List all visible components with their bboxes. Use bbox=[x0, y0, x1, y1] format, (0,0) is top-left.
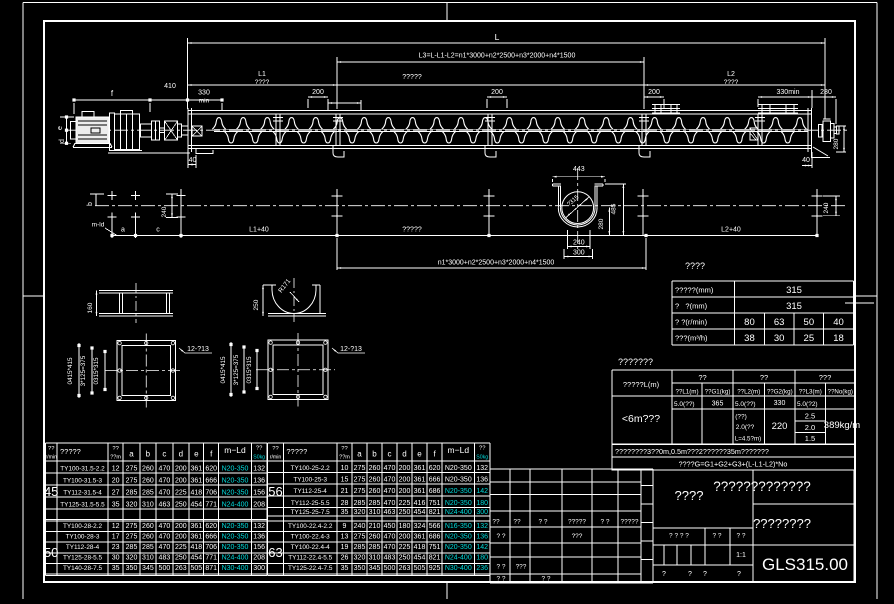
svg-text:N30-400: N30-400 bbox=[445, 565, 472, 572]
svg-text:320: 320 bbox=[354, 509, 366, 516]
svg-text:1.5: 1.5 bbox=[805, 434, 815, 443]
svg-text:56: 56 bbox=[268, 484, 282, 499]
svg-text:? ?(r/min): ? ?(r/min) bbox=[675, 318, 708, 327]
svg-text:S0kg: S0kg bbox=[253, 455, 265, 461]
svg-text:320: 320 bbox=[354, 555, 366, 562]
svg-text:40: 40 bbox=[802, 157, 810, 164]
svg-text:e: e bbox=[57, 126, 64, 130]
svg-text:????: ???? bbox=[255, 79, 270, 86]
svg-text:250: 250 bbox=[175, 502, 187, 509]
svg-text:310: 310 bbox=[142, 555, 154, 562]
svg-text:??L1(m): ??L1(m) bbox=[675, 389, 698, 396]
svg-text:180: 180 bbox=[476, 500, 488, 507]
svg-text:260: 260 bbox=[142, 523, 154, 530]
svg-text:min: min bbox=[199, 98, 210, 105]
svg-text:L=4.5?m): L=4.5?m) bbox=[735, 436, 761, 443]
svg-text:25: 25 bbox=[804, 333, 815, 344]
svg-text:???: ??? bbox=[819, 373, 832, 382]
svg-text:?????: ????? bbox=[620, 519, 638, 526]
svg-text:200: 200 bbox=[175, 533, 187, 540]
svg-text:315: 315 bbox=[786, 285, 802, 296]
svg-text:275: 275 bbox=[354, 477, 366, 484]
svg-text:2.5: 2.5 bbox=[805, 412, 815, 421]
svg-text:200: 200 bbox=[399, 533, 411, 540]
svg-text:180: 180 bbox=[476, 555, 488, 562]
svg-text:?????: ????? bbox=[568, 519, 586, 526]
svg-text:505: 505 bbox=[414, 565, 426, 572]
svg-text:? ?: ? ? bbox=[496, 533, 505, 540]
svg-text:2.0: 2.0 bbox=[805, 423, 815, 432]
svg-text:b: b bbox=[372, 450, 377, 459]
svg-text:285: 285 bbox=[142, 490, 154, 497]
svg-text:361: 361 bbox=[190, 466, 202, 473]
svg-text:200: 200 bbox=[175, 466, 187, 473]
svg-text:330: 330 bbox=[774, 400, 786, 407]
svg-text:30: 30 bbox=[774, 333, 785, 344]
svg-text:200: 200 bbox=[399, 477, 411, 484]
svg-text:389kg/m: 389kg/m bbox=[824, 420, 861, 431]
svg-text:??: ?? bbox=[341, 446, 348, 452]
svg-text:r/min: r/min bbox=[45, 455, 57, 461]
svg-text:620: 620 bbox=[205, 523, 217, 530]
svg-text:TY125-28-5.5: TY125-28-5.5 bbox=[63, 555, 103, 562]
svg-text:361: 361 bbox=[190, 478, 202, 485]
svg-text:505: 505 bbox=[190, 565, 202, 572]
svg-text:330min: 330min bbox=[777, 89, 800, 96]
svg-text:n1*3000+n2*2500+n3*2000+n4*150: n1*3000+n2*2500+n3*2000+n4*1500 bbox=[438, 260, 555, 267]
svg-text:b: b bbox=[146, 450, 151, 459]
svg-text:470: 470 bbox=[384, 477, 396, 484]
svg-text:30: 30 bbox=[112, 555, 120, 562]
svg-text:????: ???? bbox=[675, 488, 704, 503]
svg-text:TY100-28-2.2: TY100-28-2.2 bbox=[63, 523, 103, 530]
svg-text:200: 200 bbox=[399, 465, 411, 472]
svg-text:L1+40: L1+40 bbox=[249, 227, 269, 234]
svg-text:500: 500 bbox=[384, 565, 396, 572]
svg-text:??: ?? bbox=[256, 446, 263, 452]
svg-text:c: c bbox=[156, 227, 160, 234]
svg-text:324: 324 bbox=[414, 523, 426, 530]
svg-text:N20-350: N20-350 bbox=[445, 533, 472, 540]
svg-text:????: ???? bbox=[724, 79, 739, 86]
svg-text:751: 751 bbox=[429, 500, 441, 507]
svg-text:N20-350: N20-350 bbox=[222, 466, 249, 473]
svg-text:18: 18 bbox=[833, 333, 844, 344]
svg-text:L3=L-L1-L2=n1*3000+n2*2500+n3*: L3=L-L1-L2=n1*3000+n2*2500+n3*2000+n4*15… bbox=[419, 53, 576, 60]
svg-text:5.0(??): 5.0(??) bbox=[674, 401, 695, 408]
svg-text:686: 686 bbox=[429, 488, 441, 495]
svg-text:200: 200 bbox=[399, 488, 411, 495]
svg-text:285: 285 bbox=[354, 500, 366, 507]
svg-text:TY100-22.4-3: TY100-22.4-3 bbox=[291, 533, 331, 540]
svg-text:463: 463 bbox=[159, 502, 171, 509]
svg-text:470: 470 bbox=[384, 533, 396, 540]
svg-text:m−Ld: m−Ld bbox=[448, 445, 470, 455]
svg-text:TY125-31.5-5.5: TY125-31.5-5.5 bbox=[60, 502, 105, 509]
svg-text:? ?: ? ? bbox=[736, 533, 745, 540]
svg-text:275: 275 bbox=[126, 478, 138, 485]
svg-text:5.0(?2): 5.0(?2) bbox=[797, 401, 818, 408]
svg-text:N24-400: N24-400 bbox=[445, 509, 472, 516]
svg-text:????: ???? bbox=[685, 261, 705, 271]
svg-text:?: ? bbox=[662, 571, 666, 578]
svg-text:3*125=375: 3*125=375 bbox=[233, 354, 240, 385]
svg-text:N20-350: N20-350 bbox=[222, 478, 249, 485]
svg-text:??L2(m): ??L2(m) bbox=[737, 389, 760, 396]
svg-text:??: ?? bbox=[112, 446, 119, 452]
svg-text:? ? ? ?: ? ? ? ? bbox=[669, 533, 689, 540]
svg-text:686: 686 bbox=[429, 533, 441, 540]
svg-text:?: ? bbox=[737, 571, 741, 578]
svg-text:666: 666 bbox=[429, 477, 441, 484]
svg-text:260: 260 bbox=[369, 533, 381, 540]
svg-text:10: 10 bbox=[341, 465, 349, 472]
svg-text:275: 275 bbox=[354, 533, 366, 540]
svg-text:<6m???: <6m??? bbox=[622, 413, 660, 425]
svg-text:20: 20 bbox=[112, 478, 120, 485]
svg-text:? ?: ? ? bbox=[600, 519, 609, 526]
svg-text:a: a bbox=[121, 227, 125, 234]
svg-text:771: 771 bbox=[205, 555, 217, 562]
svg-text:260: 260 bbox=[142, 533, 154, 540]
svg-text:706: 706 bbox=[205, 544, 217, 551]
svg-text:?????(mm): ?????(mm) bbox=[675, 286, 714, 295]
svg-text:142: 142 bbox=[476, 544, 488, 551]
svg-text:TY140-28-7.5: TY140-28-7.5 bbox=[63, 565, 103, 572]
svg-text:240: 240 bbox=[573, 240, 585, 247]
svg-text:361: 361 bbox=[190, 523, 202, 530]
svg-text:260: 260 bbox=[369, 477, 381, 484]
svg-text:320: 320 bbox=[126, 555, 138, 562]
svg-text:N20-350: N20-350 bbox=[222, 533, 249, 540]
svg-text:? ?: ? ? bbox=[496, 564, 505, 571]
svg-text:751: 751 bbox=[429, 544, 441, 551]
svg-text:? ?: ? ? bbox=[541, 576, 550, 583]
svg-text:9: 9 bbox=[343, 523, 347, 530]
svg-text:63: 63 bbox=[774, 317, 785, 328]
svg-text:361: 361 bbox=[414, 465, 426, 472]
svg-text:418: 418 bbox=[190, 490, 202, 497]
svg-text:50: 50 bbox=[804, 317, 815, 328]
svg-text:706: 706 bbox=[205, 490, 217, 497]
svg-text:12-?13: 12-?13 bbox=[187, 346, 209, 353]
svg-text:310: 310 bbox=[142, 502, 154, 509]
svg-text:15: 15 bbox=[341, 477, 349, 484]
svg-text:275: 275 bbox=[354, 488, 366, 495]
svg-text:??: ?? bbox=[760, 373, 768, 382]
svg-text:361: 361 bbox=[414, 488, 426, 495]
svg-text:TY112-25-4: TY112-25-4 bbox=[294, 488, 328, 495]
svg-text:??G2(kg): ??G2(kg) bbox=[767, 389, 793, 396]
svg-text:12-?13: 12-?13 bbox=[340, 346, 362, 353]
svg-text:N24-400: N24-400 bbox=[222, 555, 249, 562]
svg-text:80: 80 bbox=[744, 317, 755, 328]
svg-text:??: ?? bbox=[272, 446, 279, 452]
svg-text:12: 12 bbox=[112, 466, 120, 473]
svg-text:350: 350 bbox=[126, 565, 138, 572]
svg-text:300: 300 bbox=[476, 509, 488, 516]
svg-text:TY100-31.5-3: TY100-31.5-3 bbox=[63, 478, 103, 485]
svg-text:470: 470 bbox=[159, 490, 171, 497]
svg-text:N20-350: N20-350 bbox=[445, 477, 472, 484]
svg-text:N20-350: N20-350 bbox=[445, 500, 472, 507]
svg-text:0415*415: 0415*415 bbox=[220, 356, 227, 383]
svg-text:200: 200 bbox=[491, 89, 503, 96]
svg-text:210: 210 bbox=[369, 523, 381, 530]
svg-text:620: 620 bbox=[205, 466, 217, 473]
svg-text:c: c bbox=[388, 450, 392, 459]
svg-text:300: 300 bbox=[573, 250, 585, 257]
svg-text:275: 275 bbox=[126, 523, 138, 530]
svg-text:275: 275 bbox=[126, 533, 138, 540]
svg-text:TY125-22.4-7.5: TY125-22.4-7.5 bbox=[288, 565, 333, 572]
svg-text:485: 485 bbox=[611, 203, 618, 214]
svg-text:470: 470 bbox=[159, 533, 171, 540]
svg-text:285: 285 bbox=[126, 490, 138, 497]
svg-text:TY100-22.4-2.2: TY100-22.4-2.2 bbox=[288, 523, 333, 530]
svg-text:??m: ??m bbox=[339, 455, 350, 461]
svg-text:345: 345 bbox=[142, 565, 154, 572]
svg-text:?????: ????? bbox=[402, 227, 422, 234]
svg-text:285: 285 bbox=[126, 544, 138, 551]
svg-text:GLS315.00: GLS315.00 bbox=[762, 555, 848, 574]
svg-text:470: 470 bbox=[384, 488, 396, 495]
svg-text:L1: L1 bbox=[258, 71, 266, 78]
svg-text:142: 142 bbox=[476, 488, 488, 495]
svg-text:?????L(m): ?????L(m) bbox=[623, 380, 660, 389]
svg-text:?????????????: ????????????? bbox=[713, 479, 811, 494]
svg-text:260: 260 bbox=[142, 478, 154, 485]
svg-text:27: 27 bbox=[112, 490, 120, 497]
svg-text:1:1: 1:1 bbox=[736, 552, 746, 559]
svg-text:470: 470 bbox=[384, 500, 396, 507]
svg-text:132: 132 bbox=[476, 523, 488, 530]
svg-text:285: 285 bbox=[354, 544, 366, 551]
svg-text:40: 40 bbox=[833, 317, 844, 328]
svg-text:310: 310 bbox=[369, 555, 381, 562]
svg-text:35: 35 bbox=[112, 502, 120, 509]
svg-text:? ?(mm): ? ?(mm) bbox=[675, 302, 708, 311]
svg-text:N16-350: N16-350 bbox=[445, 523, 472, 530]
svg-text:771: 771 bbox=[205, 502, 217, 509]
svg-text:208: 208 bbox=[253, 502, 265, 509]
svg-text:??m: ??m bbox=[110, 455, 121, 461]
svg-text:23: 23 bbox=[112, 544, 120, 551]
svg-text:156: 156 bbox=[253, 544, 265, 551]
svg-text:???: ??? bbox=[516, 564, 527, 571]
svg-text:200: 200 bbox=[312, 89, 324, 96]
svg-text:???????: ??????? bbox=[618, 357, 653, 367]
svg-text:566: 566 bbox=[429, 523, 441, 530]
svg-text:0415*415: 0415*415 bbox=[67, 357, 74, 384]
svg-text:TY100-22.4-4: TY100-22.4-4 bbox=[291, 544, 331, 551]
svg-text:250: 250 bbox=[399, 509, 411, 516]
svg-text:250: 250 bbox=[175, 555, 187, 562]
svg-text:666: 666 bbox=[205, 533, 217, 540]
svg-text:??: ?? bbox=[48, 446, 55, 452]
svg-text:N20-350: N20-350 bbox=[445, 488, 472, 495]
svg-text:365: 365 bbox=[712, 401, 724, 408]
svg-text:?????: ????? bbox=[60, 447, 81, 456]
svg-text:45: 45 bbox=[44, 484, 58, 499]
svg-text:m-ld: m-ld bbox=[92, 222, 105, 229]
svg-text:TY112-28-4: TY112-28-4 bbox=[66, 544, 100, 551]
svg-text:??No(kg): ??No(kg) bbox=[828, 389, 853, 396]
svg-text:N20-350: N20-350 bbox=[222, 523, 249, 530]
svg-text:275: 275 bbox=[354, 465, 366, 472]
svg-text:S0kg: S0kg bbox=[476, 455, 488, 461]
svg-text:250: 250 bbox=[253, 299, 260, 310]
svg-text:35: 35 bbox=[341, 509, 349, 516]
svg-text:315: 315 bbox=[786, 301, 802, 312]
svg-text:a: a bbox=[357, 450, 362, 459]
svg-text:310: 310 bbox=[369, 509, 381, 516]
svg-text:?????: ????? bbox=[402, 74, 422, 81]
svg-text:N20-350: N20-350 bbox=[222, 544, 249, 551]
svg-text:?????: ????? bbox=[286, 447, 307, 456]
svg-text:320: 320 bbox=[126, 502, 138, 509]
svg-text:208: 208 bbox=[253, 555, 265, 562]
svg-text:871: 871 bbox=[205, 565, 217, 572]
svg-text:5.0(??): 5.0(??) bbox=[735, 401, 756, 408]
svg-text:132: 132 bbox=[476, 465, 488, 472]
svg-text:136: 136 bbox=[253, 533, 265, 540]
svg-text:418: 418 bbox=[190, 544, 202, 551]
svg-text:d: d bbox=[179, 450, 183, 459]
svg-text:450: 450 bbox=[384, 523, 396, 530]
svg-text:TY125-25-7.5: TY125-25-7.5 bbox=[291, 509, 331, 516]
svg-text:463: 463 bbox=[384, 509, 396, 516]
svg-text:500: 500 bbox=[159, 565, 171, 572]
svg-text:416: 416 bbox=[414, 500, 426, 507]
svg-text:N24-400: N24-400 bbox=[445, 555, 472, 562]
svg-text:454: 454 bbox=[190, 555, 202, 562]
svg-text:L2: L2 bbox=[727, 71, 735, 78]
svg-text:280: 280 bbox=[820, 89, 832, 96]
svg-text:35: 35 bbox=[112, 565, 120, 572]
svg-text:(??): (??) bbox=[735, 414, 747, 421]
svg-text:280: 280 bbox=[598, 218, 605, 229]
svg-text:TY100-25-3: TY100-25-3 bbox=[293, 477, 327, 484]
svg-text:e: e bbox=[417, 450, 422, 459]
svg-text:0315*315: 0315*315 bbox=[246, 356, 253, 383]
svg-text:13: 13 bbox=[341, 533, 349, 540]
svg-text:470: 470 bbox=[159, 466, 171, 473]
svg-text:r/min: r/min bbox=[270, 455, 282, 461]
svg-text:???: ??? bbox=[572, 533, 583, 540]
svg-text:285: 285 bbox=[142, 544, 154, 551]
svg-text:N20-350: N20-350 bbox=[445, 465, 472, 472]
svg-text:????????: ???????? bbox=[753, 516, 811, 531]
svg-text:260: 260 bbox=[369, 465, 381, 472]
svg-text:c: c bbox=[162, 450, 166, 459]
svg-text:L: L bbox=[495, 32, 500, 42]
svg-text:250: 250 bbox=[399, 555, 411, 562]
svg-text:470: 470 bbox=[159, 478, 171, 485]
svg-text:??G1(kg): ??G1(kg) bbox=[705, 389, 731, 396]
svg-text:156: 156 bbox=[253, 490, 265, 497]
svg-text:????G=G1+G2+G3+(L-L1-L2)*No: ????G=G1+G2+G3+(L-L1-L2)*No bbox=[679, 460, 788, 469]
svg-text:483: 483 bbox=[159, 555, 171, 562]
svg-text:63: 63 bbox=[268, 545, 282, 560]
svg-text:236: 236 bbox=[476, 565, 488, 572]
svg-text:132: 132 bbox=[253, 466, 265, 473]
svg-text:821: 821 bbox=[429, 555, 441, 562]
svg-text:821: 821 bbox=[429, 509, 441, 516]
svg-text:TY112-22.4-5.5: TY112-22.4-5.5 bbox=[288, 555, 332, 562]
svg-text:470: 470 bbox=[159, 523, 171, 530]
svg-text:?: ? bbox=[688, 571, 692, 578]
svg-text:N24-400: N24-400 bbox=[222, 502, 249, 509]
svg-text:260: 260 bbox=[369, 488, 381, 495]
svg-text:b: b bbox=[87, 202, 94, 206]
svg-text:410: 410 bbox=[164, 83, 176, 90]
svg-text:361: 361 bbox=[414, 533, 426, 540]
svg-text:350: 350 bbox=[354, 565, 366, 572]
svg-text:275: 275 bbox=[126, 466, 138, 473]
svg-text:TY100-31.5-2.2: TY100-31.5-2.2 bbox=[60, 466, 105, 473]
svg-text:19: 19 bbox=[341, 544, 349, 551]
svg-text:?: ? bbox=[703, 571, 707, 578]
svg-text:418: 418 bbox=[414, 544, 426, 551]
svg-text:132: 132 bbox=[253, 523, 265, 530]
svg-text:d: d bbox=[402, 450, 406, 459]
svg-text:??: ?? bbox=[513, 519, 521, 526]
svg-text:3*125=375: 3*125=375 bbox=[80, 355, 87, 386]
svg-text:N20-350: N20-350 bbox=[445, 544, 472, 551]
svg-text:483: 483 bbox=[384, 555, 396, 562]
svg-text:225: 225 bbox=[399, 500, 411, 507]
svg-text:50: 50 bbox=[44, 545, 58, 560]
svg-text:200: 200 bbox=[175, 523, 187, 530]
svg-text:L2+40: L2+40 bbox=[721, 227, 741, 234]
svg-text:225: 225 bbox=[399, 544, 411, 551]
svg-text:200: 200 bbox=[648, 89, 660, 96]
svg-text:220: 220 bbox=[772, 421, 788, 432]
svg-text:470: 470 bbox=[384, 465, 396, 472]
svg-text:??L3(m): ??L3(m) bbox=[799, 389, 822, 396]
svg-text:925: 925 bbox=[429, 565, 441, 572]
svg-text:240: 240 bbox=[354, 523, 366, 530]
svg-text:454: 454 bbox=[190, 502, 202, 509]
svg-text:40: 40 bbox=[189, 157, 197, 164]
svg-text:? ?: ? ? bbox=[538, 519, 547, 526]
svg-text:454: 454 bbox=[414, 555, 426, 562]
svg-text:225: 225 bbox=[175, 490, 187, 497]
svg-text:263: 263 bbox=[175, 565, 187, 572]
svg-text:0315*315: 0315*315 bbox=[93, 357, 100, 384]
svg-text:470: 470 bbox=[159, 544, 171, 551]
svg-text:361: 361 bbox=[414, 477, 426, 484]
svg-text:454: 454 bbox=[414, 509, 426, 516]
svg-text:N20-350: N20-350 bbox=[222, 490, 249, 497]
svg-text:e: e bbox=[194, 450, 199, 459]
svg-text:N30-400: N30-400 bbox=[222, 565, 249, 572]
svg-text:443: 443 bbox=[573, 166, 585, 173]
svg-text:136: 136 bbox=[476, 533, 488, 540]
svg-text:????????3??0m,0.5m???2??????35: ????????3??0m,0.5m???2??????35m??????? bbox=[615, 447, 769, 456]
svg-text:38: 38 bbox=[744, 333, 755, 344]
svg-text:240: 240 bbox=[161, 206, 168, 217]
svg-text:620: 620 bbox=[429, 465, 441, 472]
svg-text:m−Ld: m−Ld bbox=[224, 445, 246, 455]
svg-text:240: 240 bbox=[823, 202, 830, 213]
svg-text:TY112-25-5.5: TY112-25-5.5 bbox=[291, 500, 330, 507]
svg-text:136: 136 bbox=[476, 477, 488, 484]
svg-text:d: d bbox=[59, 139, 66, 143]
svg-text:2.0(??: 2.0(?? bbox=[736, 424, 755, 431]
svg-text:330: 330 bbox=[198, 90, 210, 97]
